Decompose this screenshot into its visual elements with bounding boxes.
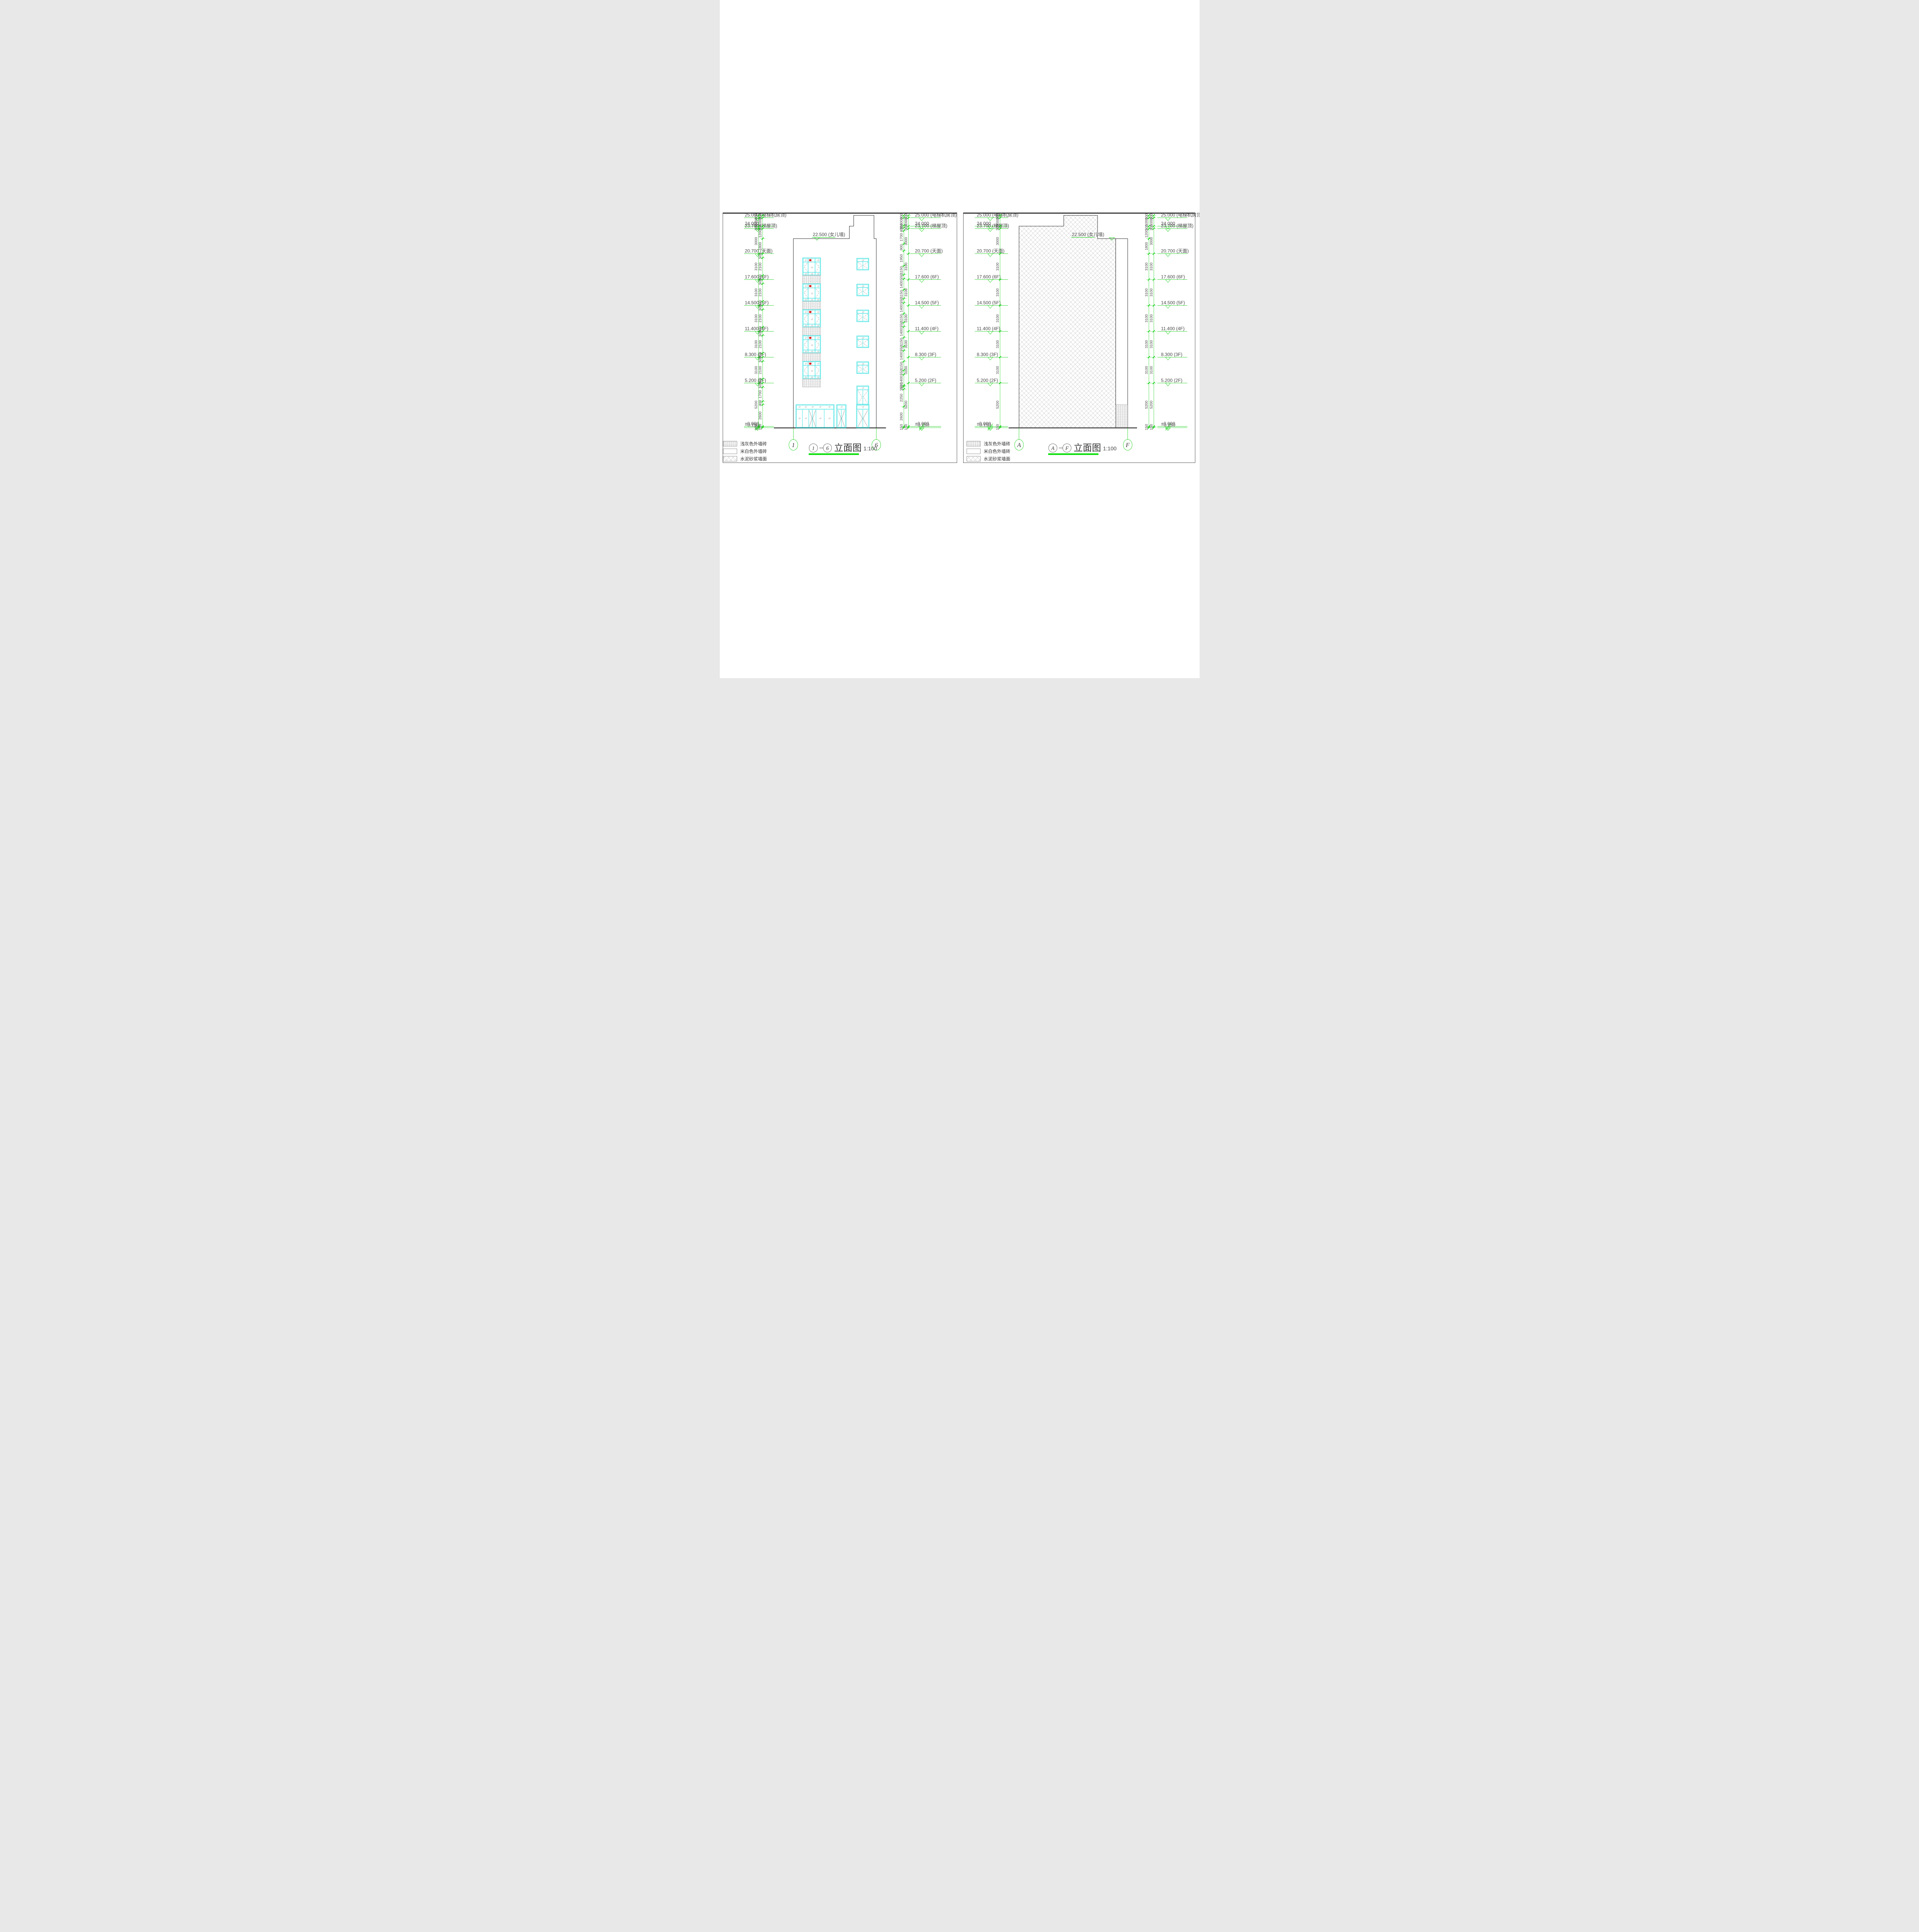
dim-value: 3100 <box>1149 288 1153 296</box>
dim-value: 300 <box>996 224 1000 231</box>
dim-value: 1400 <box>899 328 903 336</box>
dim-value: 150 <box>758 424 762 430</box>
dim-value: 3100 <box>996 366 1000 374</box>
grid-bubble-label: F <box>1125 442 1129 449</box>
legend-swatch-vlines <box>723 441 736 446</box>
dim-value: 550 <box>899 369 903 376</box>
dim-value: 3100 <box>1144 262 1149 270</box>
panel-right: 22.500 (女儿墙)25.000 (电梯机房顶)24.00023.700 (… <box>963 212 1200 463</box>
level-label: 8.300 (3F) <box>915 352 936 357</box>
level-triangle-icon <box>919 218 924 221</box>
level-label: 20.700 (天面) <box>977 248 1005 254</box>
drawing-title: AF立面图1:100 <box>1048 443 1117 455</box>
level-label: 25.000 (电梯机房顶) <box>915 212 957 218</box>
dim-value: 350 <box>899 385 903 391</box>
dim-value: 1800 <box>758 242 762 250</box>
casement-window-unit <box>857 386 869 405</box>
glass-tick-icon <box>811 406 813 408</box>
glass-tick-icon <box>805 351 807 352</box>
level-marker: 25.000 (电梯机房顶) <box>1157 212 1199 221</box>
dimension-chain: 3001000300120018005002100500500210050050… <box>758 214 765 430</box>
glass-tick-icon <box>805 285 807 287</box>
dim-value: 3100 <box>1144 288 1149 296</box>
level-triangle-icon <box>919 305 924 308</box>
dim-value: 3100 <box>996 314 1000 322</box>
dim-value: 500 <box>758 304 762 311</box>
grid-bubble: 1 <box>789 428 797 450</box>
glass-tick-icon <box>811 267 813 268</box>
level-marker: 8.300 (3F) <box>975 352 1008 360</box>
level-marker: 11.400 (4F) <box>1157 326 1187 334</box>
dim-value: 1150 <box>899 290 903 298</box>
level-label: 14.500 (5F) <box>915 300 939 305</box>
dim-value: 150 <box>996 424 1000 430</box>
dim-value: 5200 <box>1144 401 1149 409</box>
balcony-window-unit <box>802 361 820 379</box>
dim-value: 5200 <box>996 401 1000 409</box>
casement-window-unit <box>857 336 869 347</box>
dim-value: 3000 <box>904 237 908 245</box>
dim-value: 1150 <box>899 362 903 370</box>
dim-value: 3100 <box>1144 366 1149 374</box>
grid-bubble-label: A <box>1016 442 1021 449</box>
glass-tick-icon <box>805 311 807 313</box>
level-marker: 23.700 (梯屋顶) <box>1157 223 1193 231</box>
level-triangle-icon <box>988 357 993 360</box>
dim-value: 3100 <box>754 262 758 270</box>
level-marker: 20.700 (天面) <box>910 248 942 257</box>
dim-value: 2100 <box>758 262 762 270</box>
dim-value: 1400 <box>899 352 903 360</box>
level-label: 17.600 (6F) <box>744 274 768 279</box>
tile-spandrel-band <box>802 379 820 387</box>
elevation-drawing-svg: 22.500 (女儿墙)25.000 (电梯机房顶)24.00023.700 (… <box>720 0 1200 678</box>
entrance-door-unit <box>836 405 846 428</box>
glass-tick-icon <box>805 417 807 419</box>
parapet-label: 22.500 (女儿墙) <box>812 231 845 237</box>
dim-value: 3100 <box>996 262 1000 270</box>
grid-bubble: A <box>1015 428 1023 450</box>
tile-band <box>1115 405 1127 428</box>
dim-value: 300 <box>754 224 758 231</box>
level-label: 8.300 (3F) <box>977 352 998 357</box>
dim-value: 150 <box>904 424 908 430</box>
dim-value: 1950 <box>899 254 903 262</box>
dim-value: 3000 <box>754 237 758 245</box>
legend-label: 水泥砂浆墙面 <box>740 456 767 461</box>
glass-tick-icon <box>828 406 830 408</box>
dim-value: 3100 <box>1149 340 1153 348</box>
level-label: −0.150 <box>1161 422 1175 428</box>
dim-value: 3100 <box>1149 314 1153 322</box>
glass-tick-icon <box>811 299 813 301</box>
dim-value: 3100 <box>754 340 758 348</box>
level-triangle-icon <box>1165 383 1170 386</box>
level-triangle-icon <box>1165 331 1170 334</box>
level-label: 17.600 (6F) <box>977 274 1001 279</box>
level-label: 23.700 (梯屋顶) <box>977 223 1009 229</box>
level-triangle-icon <box>919 331 924 334</box>
level-label: 14.500 (5F) <box>1161 300 1185 305</box>
drawing-title: 16立面图1:100 <box>809 443 877 455</box>
dim-value: 2100 <box>758 366 762 374</box>
level-marker: 14.500 (5F) <box>975 300 1008 308</box>
glass-tick-icon <box>811 376 813 378</box>
level-label: 11.400 (4F) <box>744 326 768 331</box>
dim-value: 2100 <box>758 314 762 322</box>
level-label: 11.400 (4F) <box>977 326 1000 331</box>
level-label: 20.700 (天面) <box>915 248 943 254</box>
legend-label: 米白色外墙砖 <box>984 449 1010 454</box>
dim-value: 2100 <box>758 340 762 348</box>
level-label: 5.200 (2F) <box>915 378 936 383</box>
level-label: 11.400 (4F) <box>1161 326 1185 331</box>
dim-value: 500 <box>758 279 762 285</box>
level-label: 25.000 (电梯机房顶) <box>744 212 786 218</box>
glass-tick-icon <box>817 376 819 378</box>
glass-tick-icon <box>811 325 813 327</box>
dim-value: 5200 <box>1149 401 1153 409</box>
level-triangle-icon <box>988 254 993 257</box>
dim-value: 2250 <box>899 394 903 402</box>
dim-value: 3000 <box>1149 237 1153 245</box>
glass-tick-icon <box>798 406 800 408</box>
level-label: 23.700 (梯屋顶) <box>915 223 947 229</box>
legend: 浅灰色外墙砖米白色外墙砖水泥砂浆墙面 <box>723 441 767 461</box>
parapet-label: 22.500 (女儿墙) <box>1072 231 1104 237</box>
dim-value: 400 <box>899 226 903 232</box>
glass-tick-icon <box>805 376 807 378</box>
legend-label: 水泥砂浆墙面 <box>984 456 1010 461</box>
level-label: 8.300 (3F) <box>1161 352 1182 357</box>
dim-value: 3100 <box>904 366 908 374</box>
level-marker: 5.200 (2F) <box>1157 378 1187 386</box>
legend-swatch-crosshatch <box>967 456 980 461</box>
level-triangle-icon <box>1165 357 1170 360</box>
glass-tick-icon <box>811 273 813 275</box>
glass-tick-icon <box>817 285 819 287</box>
balcony-window-unit <box>802 258 820 275</box>
dim-value: 3100 <box>1149 366 1153 374</box>
glass-tick-icon <box>817 325 819 327</box>
dim-value: 400 <box>758 400 762 406</box>
glass-tick-icon <box>817 299 819 301</box>
dim-value: 3100 <box>904 262 908 270</box>
level-triangle-icon <box>988 305 993 308</box>
dim-value: 3100 <box>1149 262 1153 270</box>
glass-tick-icon <box>817 311 819 313</box>
level-marker: 17.600 (6F) <box>1157 274 1187 282</box>
level-marker: 14.500 (5F) <box>1157 300 1187 308</box>
level-label: 14.500 (5F) <box>977 300 1001 305</box>
red-vent-dot-icon <box>809 337 811 339</box>
title-to-bubble: F <box>1065 445 1069 451</box>
title-scale: 1:100 <box>863 445 877 451</box>
grid-bubble-label: 1 <box>792 442 795 449</box>
dim-value: 500 <box>758 382 762 388</box>
level-marker: 23.700 (梯屋顶) <box>910 223 947 231</box>
level-triangle-icon <box>988 331 993 334</box>
level-label: 17.600 (6F) <box>915 274 939 279</box>
red-vent-dot-icon <box>809 285 811 287</box>
legend-swatch-vlines <box>967 441 980 446</box>
glass-tick-icon <box>805 325 807 327</box>
glass-tick-icon <box>862 337 864 338</box>
dim-value: 2100 <box>758 288 762 296</box>
level-marker: 5.200 (2F) <box>975 378 1008 386</box>
dim-value: 550 <box>899 274 903 280</box>
level-marker: 14.500 (5F) <box>910 300 941 308</box>
title-from-bubble: 1 <box>812 445 814 451</box>
dim-value: 150 <box>754 424 758 430</box>
dimension-chain: 3001000300300031003100310031003100520015… <box>996 214 1003 430</box>
level-marker: 5.200 (2F) <box>910 378 941 386</box>
dim-value: 3100 <box>754 366 758 374</box>
level-marker: 17.600 (6F) <box>975 274 1008 282</box>
title-underline <box>809 453 859 455</box>
level-triangle-icon <box>988 218 993 221</box>
dim-value: 1200 <box>758 230 762 238</box>
level-marker: 25.000 (电梯机房顶) <box>910 212 956 221</box>
dim-value: 900 <box>899 244 903 250</box>
glass-tick-icon <box>819 406 821 408</box>
title-scale: 1:100 <box>1103 445 1117 451</box>
title-text: 立面图 <box>834 443 861 453</box>
dim-value: 1400 <box>899 376 903 384</box>
dim-value: 3100 <box>1144 314 1149 322</box>
level-marker: 20.700 (天面) <box>975 248 1008 257</box>
legend-swatch-blank <box>967 449 980 454</box>
glass-tick-icon <box>817 259 819 261</box>
title-text: 立面图 <box>1073 443 1101 453</box>
dim-value: 2600 <box>758 412 762 420</box>
level-label: −0.150 <box>977 422 991 428</box>
dim-value: 3000 <box>996 237 1000 245</box>
level-label: 5.200 (2F) <box>1161 378 1182 383</box>
dim-value: 5200 <box>904 401 908 409</box>
level-marker: 11.400 (4F) <box>975 326 1008 334</box>
level-marker: 23.700 (梯屋顶) <box>975 223 1009 231</box>
level-triangle-icon <box>1165 218 1170 221</box>
glass-tick-icon <box>862 259 864 261</box>
dim-value: 1150 <box>899 338 903 346</box>
glass-tick-icon <box>817 351 819 352</box>
level-label: 11.400 (4F) <box>915 326 938 331</box>
dim-value: 550 <box>899 345 903 352</box>
dim-value: 3100 <box>904 340 908 348</box>
dim-value: 3100 <box>754 314 758 322</box>
red-vent-dot-icon <box>809 259 811 261</box>
dim-value: 150 <box>1149 424 1153 430</box>
dim-value: 1200 <box>1144 230 1149 238</box>
dim-value: 5200 <box>754 401 758 409</box>
level-marker: 8.300 (3F) <box>910 352 941 360</box>
level-label: 20.700 (天面) <box>1161 248 1189 254</box>
level-triangle-icon <box>1165 305 1170 308</box>
title-underline <box>1048 453 1098 455</box>
dim-value: 3100 <box>996 340 1000 348</box>
level-triangle-icon <box>988 279 993 282</box>
legend-swatch-crosshatch <box>723 456 736 461</box>
entrance-door-unit <box>856 405 869 428</box>
casement-window-unit <box>857 284 869 296</box>
dim-value: 3100 <box>904 314 908 322</box>
dimension-chain: 3001000300300031003100310031003100520015… <box>1149 214 1156 430</box>
level-label: 14.500 (5F) <box>744 300 768 305</box>
glass-tick-icon <box>817 363 819 364</box>
glass-tick-icon <box>811 370 813 372</box>
glass-tick-icon <box>862 311 864 313</box>
casement-window-unit <box>857 362 869 373</box>
dim-value: 300 <box>1144 224 1149 231</box>
balcony-window-unit <box>802 310 820 327</box>
parapet-level-note: 22.500 (女儿墙) <box>812 231 845 240</box>
tile-spandrel-band <box>802 301 820 310</box>
casement-window-unit <box>857 310 869 321</box>
dim-value: 3100 <box>904 288 908 296</box>
dim-value: 1150 <box>899 266 903 274</box>
hatched-wall-mass <box>1019 215 1115 428</box>
legend-swatch-blank <box>723 449 736 454</box>
title-from-bubble: A <box>1050 445 1054 451</box>
level-label: 5.200 (2F) <box>977 378 998 383</box>
legend: 浅灰色外墙砖米白色外墙砖水泥砂浆墙面 <box>967 441 1010 461</box>
side-wall-strip <box>1115 239 1127 428</box>
level-triangle-icon <box>919 279 924 282</box>
legend-label: 米白色外墙砖 <box>740 449 767 454</box>
legend-label: 浅灰色外墙砖 <box>984 441 1010 446</box>
level-triangle-icon <box>919 357 924 360</box>
glass-tick-icon <box>862 387 864 389</box>
glass-tick-icon <box>805 259 807 261</box>
dim-value: 300 <box>758 224 762 231</box>
dim-value: 550 <box>899 321 903 328</box>
glass-tick-icon <box>811 344 813 346</box>
dim-value: 150 <box>1144 424 1149 430</box>
legend-label: 浅灰色外墙砖 <box>740 441 767 446</box>
level-marker: 11.400 (4F) <box>910 326 941 334</box>
tile-spandrel-band <box>802 276 820 284</box>
glass-tick-icon <box>819 417 821 419</box>
level-triangle-icon <box>919 254 924 257</box>
glass-tick-icon <box>828 417 830 419</box>
panel-left: 22.500 (女儿墙)25.000 (电梯机房顶)24.00023.700 (… <box>722 212 957 463</box>
balcony-window-unit <box>802 335 820 353</box>
tile-spandrel-band <box>802 327 820 335</box>
dim-value: 300 <box>1149 224 1153 231</box>
level-label: 17.600 (6F) <box>1161 274 1185 279</box>
red-vent-dot-icon <box>809 362 811 364</box>
dim-value: 150 <box>899 424 903 430</box>
storefront-unit <box>796 405 834 428</box>
glass-tick-icon <box>817 337 819 338</box>
drawing-sheet: 22.500 (女儿墙)25.000 (电梯机房顶)24.00023.700 (… <box>720 0 1200 678</box>
dim-value: 300 <box>904 224 908 231</box>
level-marker: 8.300 (3F) <box>1157 352 1187 360</box>
grid-bubble: F <box>1123 428 1132 450</box>
glass-tick-icon <box>811 293 813 294</box>
level-label: 23.700 (梯屋顶) <box>1161 223 1193 229</box>
glass-tick-icon <box>811 318 813 320</box>
glass-tick-icon <box>805 337 807 338</box>
level-marker: 17.600 (6F) <box>910 274 941 282</box>
dimension-chain: 3001000300300031003100310031003100520015… <box>904 214 911 430</box>
dim-value: 1150 <box>899 314 903 322</box>
glass-tick-icon <box>862 363 864 364</box>
dim-value: 1800 <box>1144 242 1149 250</box>
glass-tick-icon <box>862 285 864 287</box>
dim-value: 500 <box>758 356 762 362</box>
glass-tick-icon <box>798 417 800 419</box>
balcony-window-unit <box>802 284 820 301</box>
level-triangle-icon <box>1165 279 1170 282</box>
dim-value: 1400 <box>899 304 903 312</box>
dim-value: 1400 <box>899 280 903 288</box>
level-triangle-icon <box>1165 254 1170 257</box>
glass-tick-icon <box>862 406 864 408</box>
dim-value: 500 <box>758 253 762 259</box>
dim-value: 500 <box>758 330 762 337</box>
glass-tick-icon <box>817 273 819 275</box>
dim-value: 3100 <box>996 288 1000 296</box>
glass-tick-icon <box>805 363 807 364</box>
level-triangle-icon <box>919 383 924 386</box>
level-triangle-icon <box>988 383 993 386</box>
level-marker: 20.700 (天面) <box>1157 248 1188 257</box>
dim-value: 1700 <box>899 233 903 241</box>
glass-tick-icon <box>811 351 813 352</box>
dim-value: 3100 <box>1144 340 1149 348</box>
dim-value: 2600 <box>899 412 903 420</box>
casement-window-unit <box>857 258 869 270</box>
level-label: 25.000 (电梯机房顶) <box>1161 212 1200 218</box>
tile-spandrel-band <box>802 353 820 361</box>
level-marker: 25.000 (电梯机房顶) <box>744 212 786 221</box>
glass-tick-icon <box>805 406 807 408</box>
glass-tick-icon <box>805 273 807 275</box>
glass-tick-icon <box>805 299 807 301</box>
dim-value: 550 <box>899 298 903 304</box>
glass-tick-icon <box>840 406 842 408</box>
red-vent-dot-icon <box>809 311 811 313</box>
dim-value: 1700 <box>758 390 762 398</box>
title-to-bubble: 6 <box>826 445 829 451</box>
level-label: −0.150 <box>915 422 929 428</box>
dim-value: 3100 <box>754 288 758 296</box>
